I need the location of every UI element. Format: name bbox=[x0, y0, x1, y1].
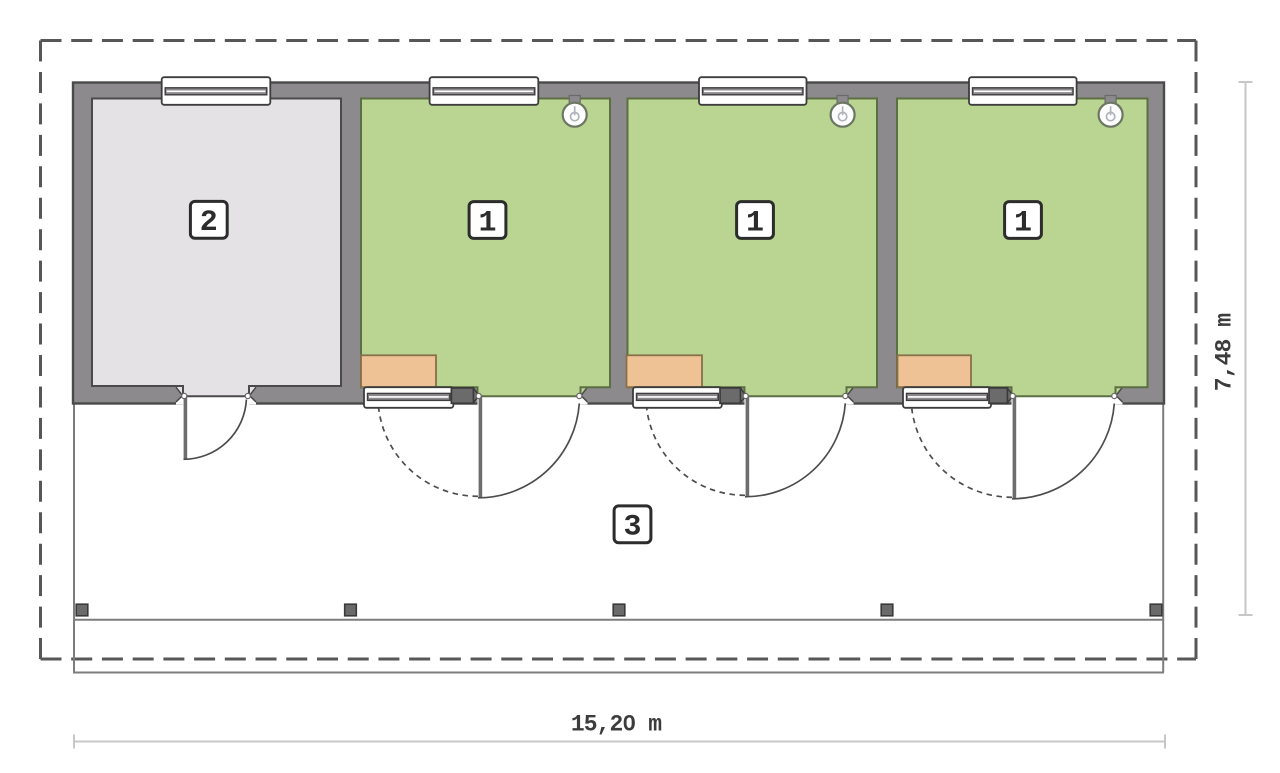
svg-text:1: 1 bbox=[746, 206, 764, 240]
svg-text:7,48 m: 7,48 m bbox=[1212, 314, 1238, 392]
svg-text:3: 3 bbox=[623, 511, 641, 545]
svg-text:1: 1 bbox=[1014, 206, 1032, 240]
svg-text:15,20 m: 15,20 m bbox=[571, 712, 661, 738]
svg-text:1: 1 bbox=[478, 206, 496, 240]
svg-text:2: 2 bbox=[200, 206, 218, 240]
